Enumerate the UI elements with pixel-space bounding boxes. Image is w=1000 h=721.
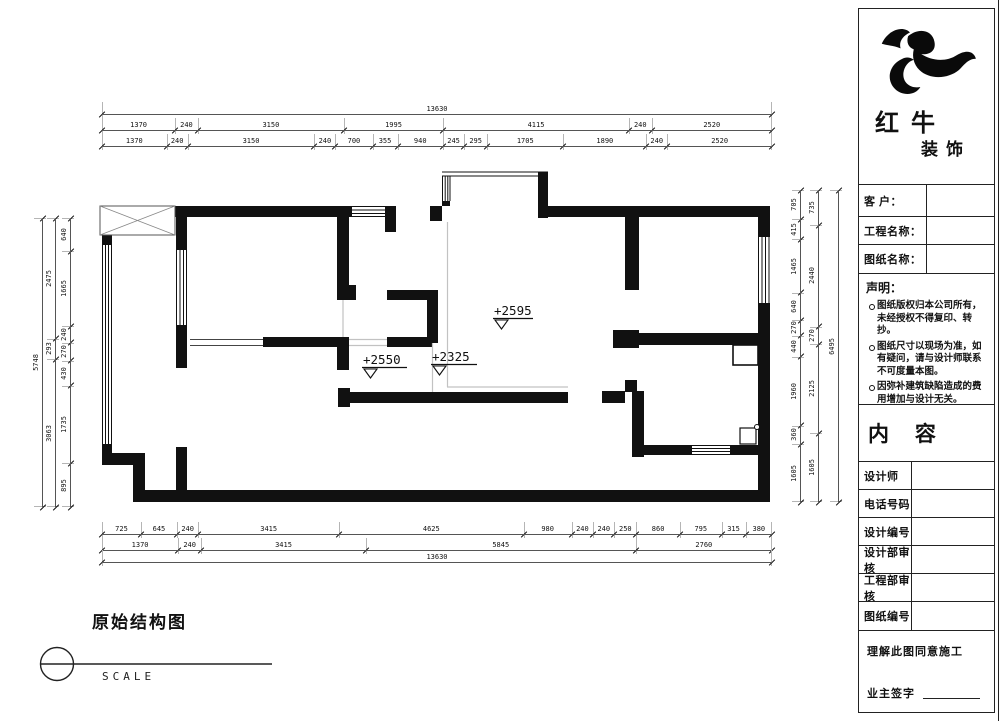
field-value (912, 518, 994, 545)
statement-list: 图纸版权归本公司所有，未经授权不得复印、转抄。 图纸尺寸以现场为准，如有疑问，请… (866, 300, 990, 406)
field-label: 电话号码 (859, 490, 912, 517)
field-label: 图纸名称： (859, 245, 927, 273)
field-row-design-review: 设计部审核 (859, 545, 994, 573)
brand-suffix: 装饰 (921, 135, 971, 160)
field-label: 工程名称： (859, 217, 927, 244)
field-label: 设计师 (859, 462, 912, 489)
field-row-project-name: 工程名称： (859, 216, 994, 244)
drawing-sheet: +2595 +2550 +2325 13630 1370240315019954… (0, 0, 1000, 721)
statement-item: 因弥补建筑缺陷造成的费用增加与设计无关。 (868, 381, 990, 406)
statement-item: 图纸尺寸以现场为准，如有疑问，请与设计师联系不可度量本图。 (868, 341, 990, 379)
brand-name: 红牛 (875, 103, 947, 138)
signature-line (923, 686, 980, 699)
level-label: +2325 (432, 349, 470, 364)
scale-mark (40, 648, 272, 681)
field-label: 客 户： (859, 185, 927, 216)
construction-consent-text: 理解此图同意施工 (867, 643, 986, 659)
level-marker-2595: +2595 (493, 303, 533, 329)
field-row-designer: 设计师 (859, 461, 994, 489)
field-value (927, 217, 994, 244)
field-value (912, 490, 994, 517)
statement-heading: 声明： (866, 279, 990, 296)
bull-logo-icon (871, 23, 981, 103)
field-value (912, 546, 994, 573)
field-row-client: 客 户： (859, 184, 994, 216)
level-marker-2325: +2325 (431, 349, 477, 375)
company-logo-area: 红牛 装饰 (859, 9, 994, 184)
field-label: 工程部审核 (859, 574, 912, 601)
title-block-panel: 红牛 装饰 客 户： 工程名称： 图纸名称： 声明： 图纸版权归本公司所有，未经… (858, 8, 995, 713)
field-value (912, 574, 994, 601)
field-label: 设计部审核 (859, 546, 912, 573)
field-value (912, 462, 994, 489)
owner-signature-label: 业主签字 (867, 685, 915, 701)
field-value (927, 245, 994, 273)
sheet-border-line (998, 0, 999, 721)
shaft-and-fixtures (733, 345, 760, 444)
field-value (912, 602, 994, 630)
field-value (927, 185, 994, 216)
field-row-drawing-name: 图纸名称： (859, 244, 994, 273)
field-label: 设计编号 (859, 518, 912, 545)
scale-label: SCALE (102, 670, 155, 683)
field-row-engineering-review: 工程部审核 (859, 573, 994, 601)
content-heading: 内 容 (859, 418, 946, 448)
level-label: +2595 (494, 303, 532, 318)
statement-section: 声明： 图纸版权归本公司所有，未经授权不得复印、转抄。 图纸尺寸以现场为准，如有… (859, 273, 994, 404)
content-section: 内 容 (859, 404, 994, 461)
field-row-phone: 电话号码 (859, 489, 994, 517)
crossed-box (100, 206, 175, 235)
field-row-design-no: 设计编号 (859, 517, 994, 545)
level-label: +2550 (363, 352, 401, 367)
thin-wall-lines (190, 340, 263, 346)
field-label: 图纸编号 (859, 602, 912, 630)
level-marker-2550: +2550 (362, 352, 407, 378)
statement-item: 图纸版权归本公司所有，未经授权不得复印、转抄。 (868, 300, 990, 338)
signature-section: 理解此图同意施工 业主签字 (859, 630, 994, 712)
walls (102, 172, 770, 502)
drawing-title: 原始结构图 (92, 608, 187, 633)
field-row-drawing-no: 图纸编号 (859, 601, 994, 630)
